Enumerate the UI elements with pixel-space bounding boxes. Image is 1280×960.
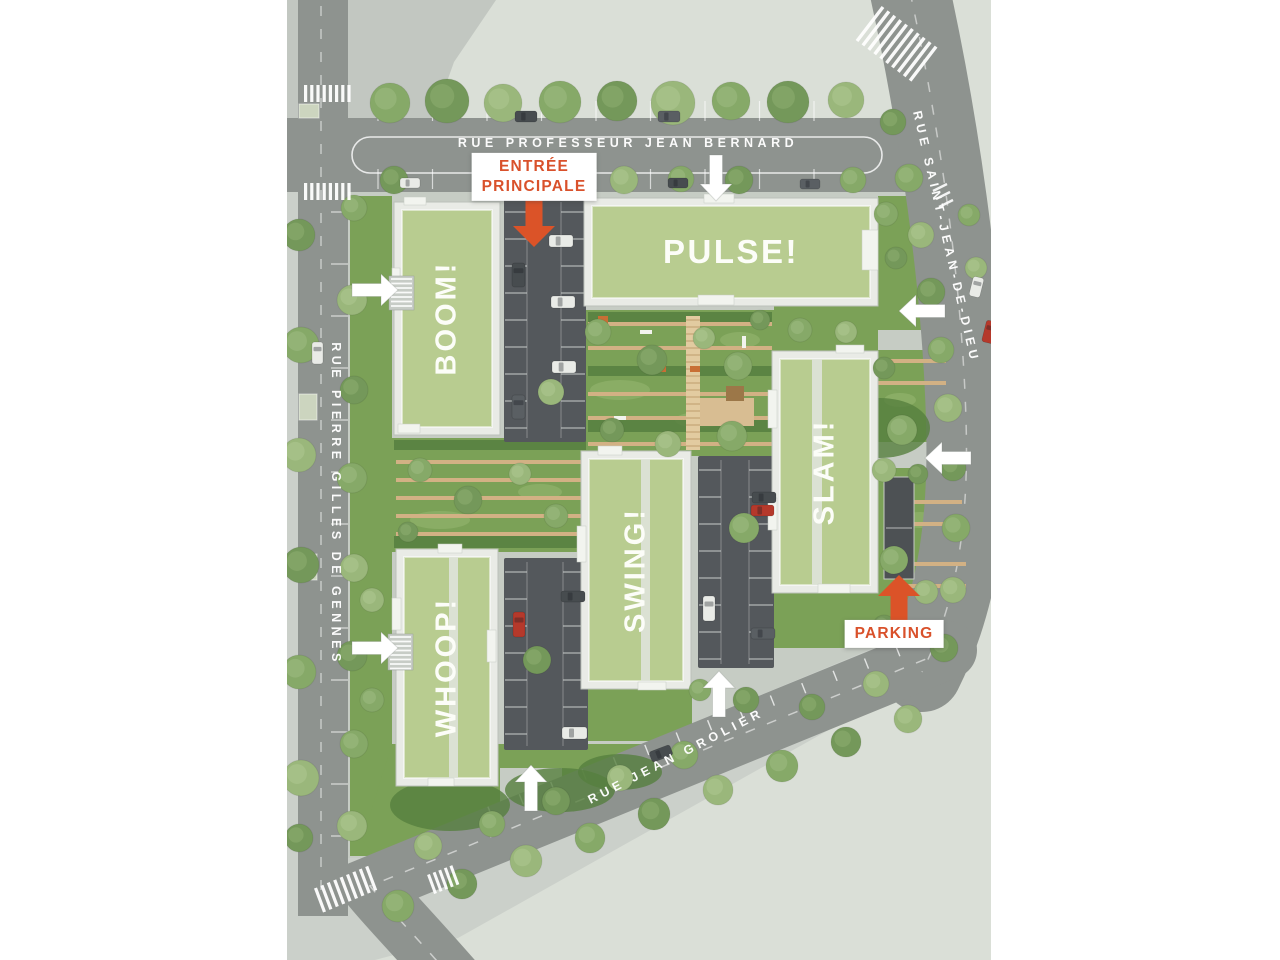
car [551, 296, 575, 308]
tree [703, 775, 733, 805]
tree [670, 741, 698, 769]
car [512, 395, 525, 419]
tree [337, 463, 367, 493]
roof-access-block [598, 446, 622, 455]
garden [772, 593, 880, 648]
tree [880, 546, 908, 574]
tree [600, 418, 624, 442]
car [752, 492, 776, 503]
tree [750, 310, 770, 330]
tree [965, 257, 987, 279]
tree [942, 514, 970, 542]
tree [914, 580, 938, 604]
tree [638, 798, 670, 830]
tree [840, 167, 866, 193]
car [400, 178, 420, 188]
roof-access-block [428, 778, 454, 786]
tree [523, 646, 551, 674]
roof-seam [449, 557, 458, 778]
tree [655, 431, 681, 457]
bench [742, 336, 746, 348]
tree [382, 890, 414, 922]
roof-seam [812, 359, 822, 585]
tree [880, 109, 906, 135]
building-roof [402, 210, 492, 427]
car [668, 178, 688, 188]
tree [542, 787, 570, 815]
tree [510, 845, 542, 877]
roof-access-block [398, 424, 420, 433]
planter-bay [299, 104, 319, 118]
car [513, 612, 525, 637]
tree [341, 195, 367, 221]
tree [637, 345, 667, 375]
car [703, 596, 715, 621]
roof-access-block [818, 584, 850, 593]
tree [539, 81, 581, 123]
tree [895, 164, 923, 192]
bench [640, 330, 652, 334]
tree [766, 750, 798, 782]
tree [597, 81, 637, 121]
tree [934, 394, 962, 422]
tree [398, 522, 418, 542]
building-slam [768, 345, 878, 593]
roof-access-block [577, 526, 586, 562]
tree [724, 352, 752, 380]
car [751, 628, 775, 639]
tree [285, 824, 313, 852]
tree [717, 421, 747, 451]
tree [767, 81, 809, 123]
tree [874, 202, 898, 226]
tree [863, 671, 889, 697]
tree [958, 204, 980, 226]
tree [610, 166, 638, 194]
tree [575, 823, 605, 853]
tree [283, 547, 319, 583]
car [515, 111, 537, 122]
tree [788, 318, 812, 342]
car [552, 361, 576, 373]
tree [340, 376, 368, 404]
plan-scene [282, 0, 998, 960]
site-plan-graphic [0, 0, 1280, 960]
tree [930, 634, 958, 662]
play-item [690, 366, 700, 372]
roof-access-block [862, 230, 878, 270]
tree [873, 357, 895, 379]
tree [282, 438, 316, 472]
roof-access-block [768, 390, 777, 428]
tree [835, 321, 857, 343]
tree [337, 811, 367, 841]
roof-access-block [404, 197, 426, 205]
tree [544, 504, 568, 528]
tree [908, 222, 934, 248]
building-roof [592, 206, 870, 298]
tree [917, 278, 945, 306]
tree [340, 730, 368, 758]
car [549, 235, 573, 247]
tree [799, 694, 825, 720]
tree [885, 247, 907, 269]
hedge [394, 536, 584, 548]
tree [370, 83, 410, 123]
meadow-highlight [590, 380, 650, 400]
car [512, 263, 525, 287]
roof-access-block [698, 295, 734, 305]
meadow-highlight [720, 332, 760, 348]
site-plan-page: RUE PROFESSEUR JEAN BERNARD RUE SAINT-JE… [0, 0, 1280, 960]
car [561, 591, 585, 602]
tree [729, 513, 759, 543]
roof-access-block [836, 345, 864, 353]
tree [940, 577, 966, 603]
tree [693, 327, 715, 349]
building-roof [404, 557, 490, 778]
tree [509, 463, 531, 485]
planter-bay [299, 394, 317, 420]
car [312, 342, 323, 364]
tree [282, 655, 316, 689]
tree [454, 486, 482, 514]
car [800, 179, 820, 189]
car [658, 111, 680, 122]
roof-access-block [638, 682, 666, 690]
roof-access-block [392, 598, 401, 630]
building-pulse [584, 194, 878, 306]
tree [414, 832, 442, 860]
building-roof [780, 359, 870, 585]
car [562, 727, 587, 739]
tree [283, 219, 315, 251]
tree [725, 166, 753, 194]
tree [360, 588, 384, 612]
building-swing [577, 446, 691, 690]
tree [607, 765, 633, 791]
tree [908, 464, 928, 484]
tree [538, 379, 564, 405]
tree [928, 337, 954, 363]
tree [283, 760, 319, 796]
tree [585, 319, 611, 345]
tree [408, 458, 432, 482]
roof-seam [641, 459, 650, 681]
building-boom [392, 197, 500, 435]
garden-hut [726, 386, 744, 401]
tree [887, 415, 917, 445]
building-roof [589, 459, 683, 681]
tree [828, 82, 864, 118]
roof-access-block [487, 630, 496, 662]
meadow-highlight [410, 511, 470, 529]
tree [495, 166, 523, 194]
roof-access-block [438, 544, 462, 553]
car [751, 505, 774, 516]
tree [360, 688, 384, 712]
tree [894, 705, 922, 733]
tree [831, 727, 861, 757]
tree [712, 82, 750, 120]
tree [340, 554, 368, 582]
tree [872, 458, 896, 482]
tree [733, 687, 759, 713]
tree [425, 79, 469, 123]
tree [479, 811, 505, 837]
